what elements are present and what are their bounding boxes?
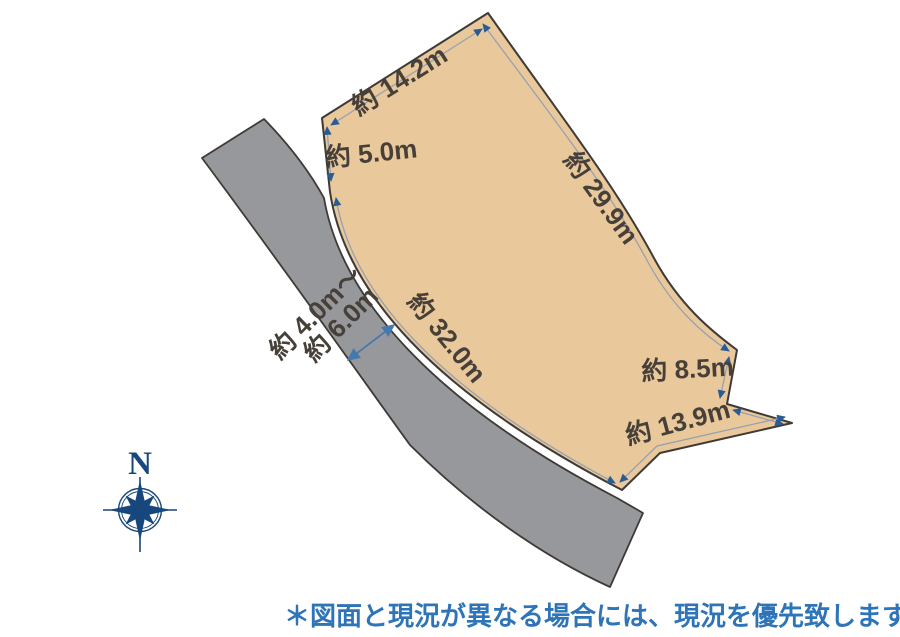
compass-north-label: N [128, 446, 152, 482]
disclaimer-text: ＊図面と現況が異なる場合には、現況を優先致します。 [284, 601, 900, 631]
plot-diagram-canvas: 約 14.2m 約 5.0m 約 29.9m 約 32.0m 約 8.5m 約 … [0, 0, 900, 637]
label-lower-right-edge: 約 8.5m [641, 352, 735, 387]
land-plot-diagram: 約 14.2m 約 5.0m 約 29.9m 約 32.0m 約 8.5m 約 … [0, 0, 900, 637]
compass-rose: N [103, 446, 177, 552]
compass-center-dot [135, 505, 145, 515]
